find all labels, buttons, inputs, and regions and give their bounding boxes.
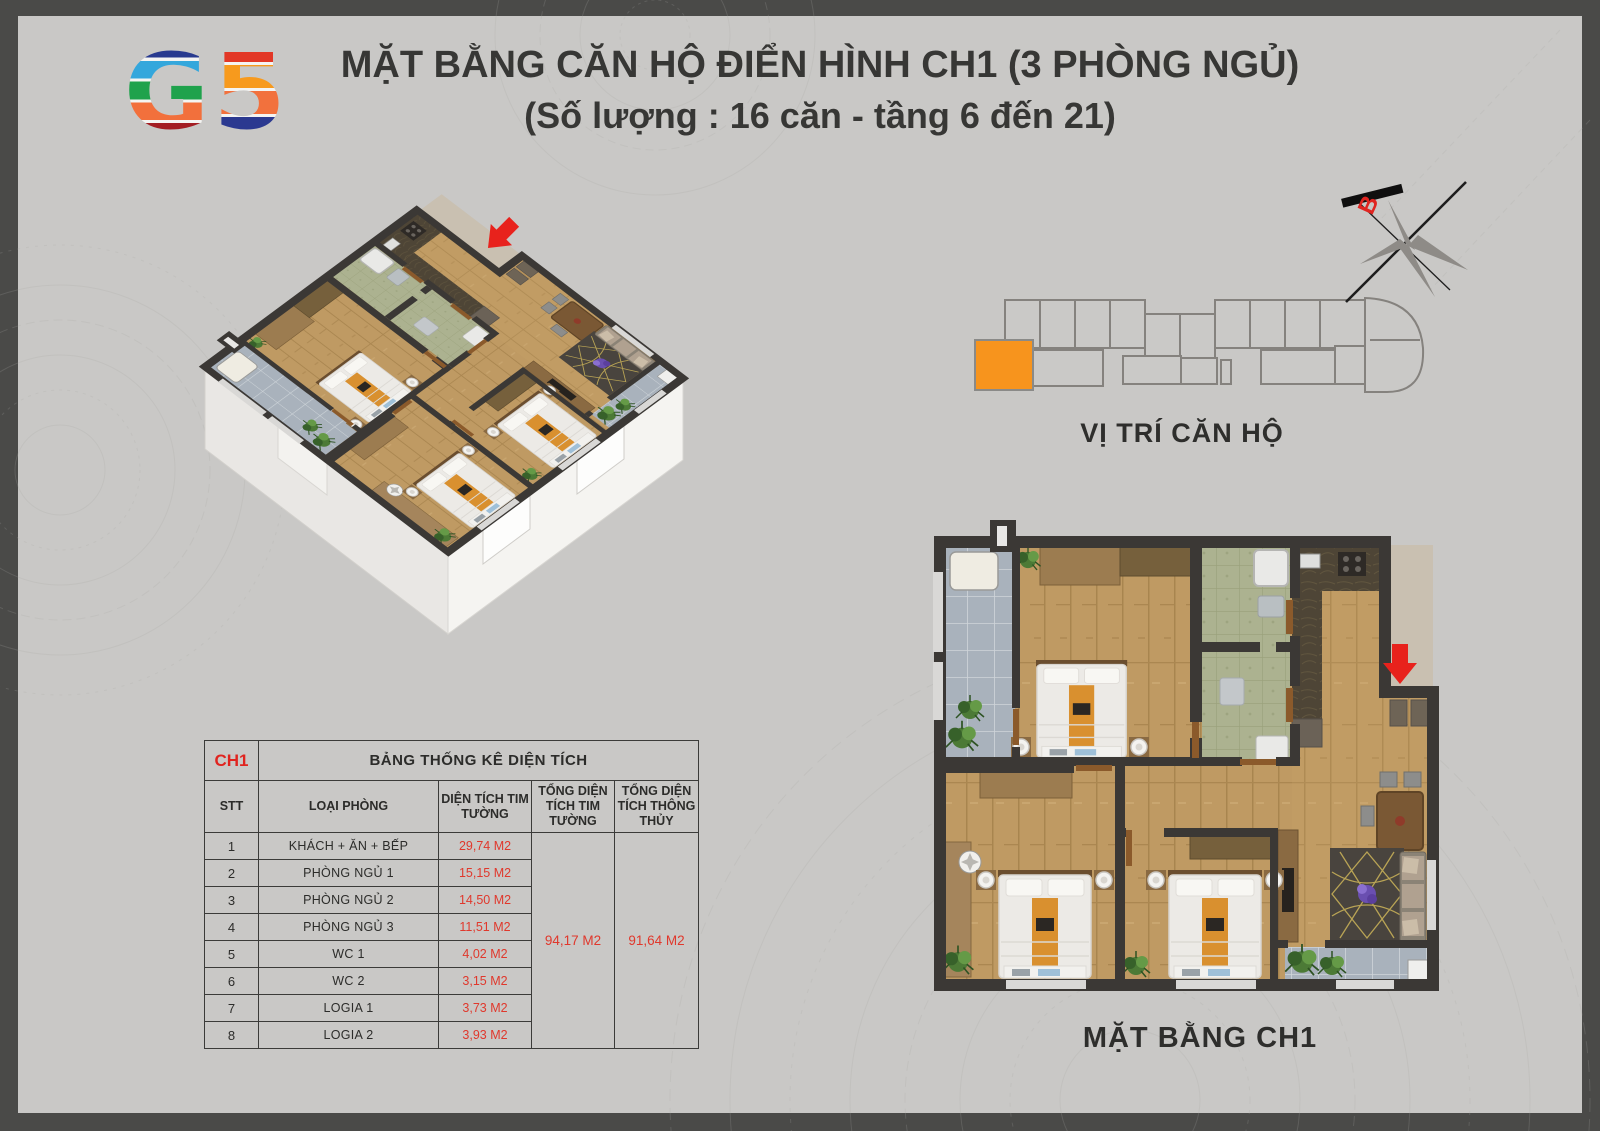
row-room: PHÒNG NGỦ 1 [259, 860, 439, 887]
row-area: 3,15 M2 [439, 968, 532, 995]
row-area: 3,73 M2 [439, 995, 532, 1022]
building-location-diagram [975, 298, 1423, 392]
row-area: 3,93 M2 [439, 1022, 532, 1049]
column-header-4: TỔNG DIỆN TÍCH THÔNG THỦY [615, 781, 699, 833]
brochure-page: B [0, 0, 1600, 1131]
table-header-row: CH1BẢNG THỐNG KÊ DIỆN TÍCH [205, 741, 699, 781]
row-stt: 5 [205, 941, 259, 968]
row-room: WC 1 [259, 941, 439, 968]
page-title: MẶT BẰNG CĂN HỘ ĐIỂN HÌNH CH1 (3 PHÒNG N… [330, 44, 1310, 137]
column-header-2: DIỆN TÍCH TIM TƯỜNG [439, 781, 532, 833]
total-thong-thuy: 91,64 M2 [615, 833, 699, 1049]
row-stt: 6 [205, 968, 259, 995]
floor-plan-2d [933, 520, 1436, 989]
unit-code-cell: CH1 [205, 741, 259, 781]
column-header-0: STT [205, 781, 259, 833]
row-area: 4,02 M2 [439, 941, 532, 968]
row-stt: 8 [205, 1022, 259, 1049]
area-table-body: CH1BẢNG THỐNG KÊ DIỆN TÍCHSTTLOẠI PHÒNGD… [205, 741, 699, 1049]
floor-plan-caption: MẶT BẰNG CH1 [1040, 1022, 1360, 1055]
row-room: LOGIA 2 [259, 1022, 439, 1049]
row-stt: 1 [205, 833, 259, 860]
title-line-1: MẶT BẰNG CĂN HỘ ĐIỂN HÌNH CH1 (3 PHÒNG N… [330, 44, 1310, 87]
location-diagram-caption: VỊ TRÍ CĂN HỘ [1032, 418, 1332, 449]
row-area: 15,15 M2 [439, 860, 532, 887]
row-room: PHÒNG NGỦ 2 [259, 887, 439, 914]
table-title-cell: BẢNG THỐNG KÊ DIỆN TÍCH [259, 741, 699, 781]
compass-icon: B [1341, 182, 1468, 302]
column-header-3: TỔNG DIỆN TÍCH TIM TƯỜNG [532, 781, 615, 833]
row-stt: 3 [205, 887, 259, 914]
row-room: WC 2 [259, 968, 439, 995]
row-room: PHÒNG NGỦ 3 [259, 914, 439, 941]
logo-letter-5: 5 [213, 40, 283, 144]
row-room: LOGIA 1 [259, 995, 439, 1022]
g5-logo: G 5 [124, 40, 284, 144]
row-area: 11,51 M2 [439, 914, 532, 941]
column-header-1: LOẠI PHÒNG [259, 781, 439, 833]
row-stt: 2 [205, 860, 259, 887]
table-row: 1KHÁCH + ĂN + BẾP29,74 M294,17 M291,64 M… [205, 833, 699, 860]
area-table: CH1BẢNG THỐNG KÊ DIỆN TÍCHSTTLOẠI PHÒNGD… [204, 740, 699, 1049]
iso-3d-view [190, 183, 687, 634]
row-area: 29,74 M2 [439, 833, 532, 860]
row-stt: 4 [205, 914, 259, 941]
logo-letter-g: G [124, 40, 207, 144]
row-room: KHÁCH + ĂN + BẾP [259, 833, 439, 860]
title-line-2: (Số lượng : 16 căn - tầng 6 đến 21) [330, 95, 1310, 137]
column-header-row: STTLOẠI PHÒNGDIỆN TÍCH TIM TƯỜNGTỔNG DIỆ… [205, 781, 699, 833]
total-tim-tuong: 94,17 M2 [532, 833, 615, 1049]
row-area: 14,50 M2 [439, 887, 532, 914]
highlighted-unit [975, 340, 1033, 390]
row-stt: 7 [205, 995, 259, 1022]
